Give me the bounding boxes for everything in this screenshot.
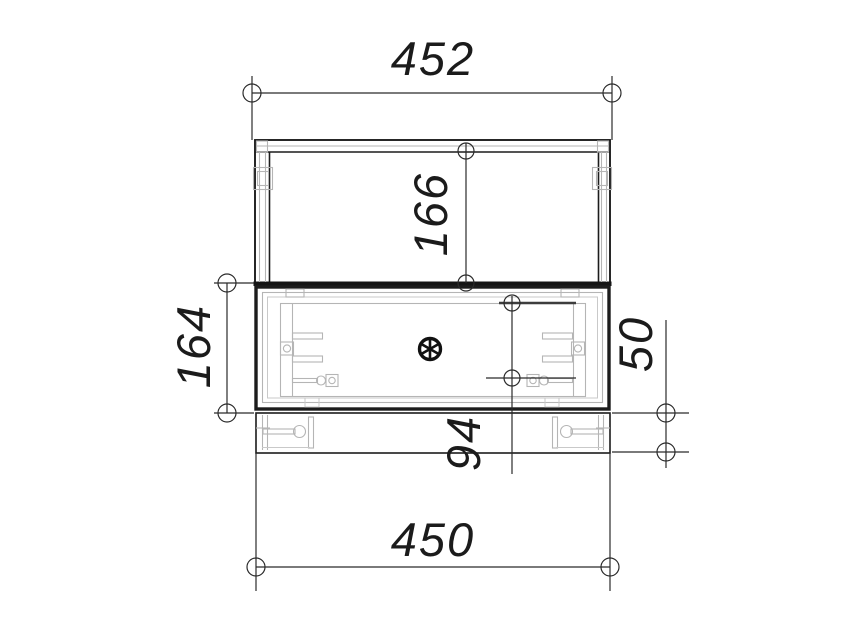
left-slide-rails xyxy=(281,333,339,387)
middle-section-drawer xyxy=(256,287,609,409)
technical-drawing: 452 166 164 94 50 xyxy=(0,0,856,623)
spoked-wheel-icon xyxy=(420,339,441,360)
slide-rail xyxy=(293,356,323,362)
dimension-label: 94 xyxy=(437,415,490,471)
screw-icon xyxy=(574,345,581,352)
dimension-label: 452 xyxy=(391,32,475,85)
dimension-drawer-opening-height: 94 xyxy=(437,295,576,474)
screw-plate xyxy=(281,342,294,355)
right-leg-adjuster xyxy=(553,415,611,450)
dimension-upper-door-height: 166 xyxy=(404,143,474,291)
slide-rail xyxy=(543,333,573,339)
dimension-label: 450 xyxy=(391,513,475,566)
dimension-middle-section-height: 164 xyxy=(167,274,254,422)
leg-bar xyxy=(553,417,558,448)
leg-bar xyxy=(309,417,314,448)
slide-rail xyxy=(543,356,573,362)
dimension-label: 50 xyxy=(609,316,662,372)
screw-icon xyxy=(329,377,335,383)
dimension-overall-width-top: 452 xyxy=(243,32,621,140)
slide-rod xyxy=(293,379,318,383)
screw-icon xyxy=(283,345,290,352)
dimension-plinth-height: 50 xyxy=(609,316,689,468)
screw-plate xyxy=(527,375,539,387)
plinth-section xyxy=(256,413,610,453)
dimension-label: 164 xyxy=(167,304,220,388)
right-hinge xyxy=(593,141,612,282)
left-leg-adjuster xyxy=(256,415,314,450)
screw-plate xyxy=(326,375,338,387)
dimension-overall-width-bottom: 450 xyxy=(247,453,619,591)
slide-rail xyxy=(293,333,323,339)
slide-rod xyxy=(548,379,573,383)
dimension-label: 166 xyxy=(404,172,457,256)
drawing-canvas: 452 166 164 94 50 xyxy=(0,0,856,623)
